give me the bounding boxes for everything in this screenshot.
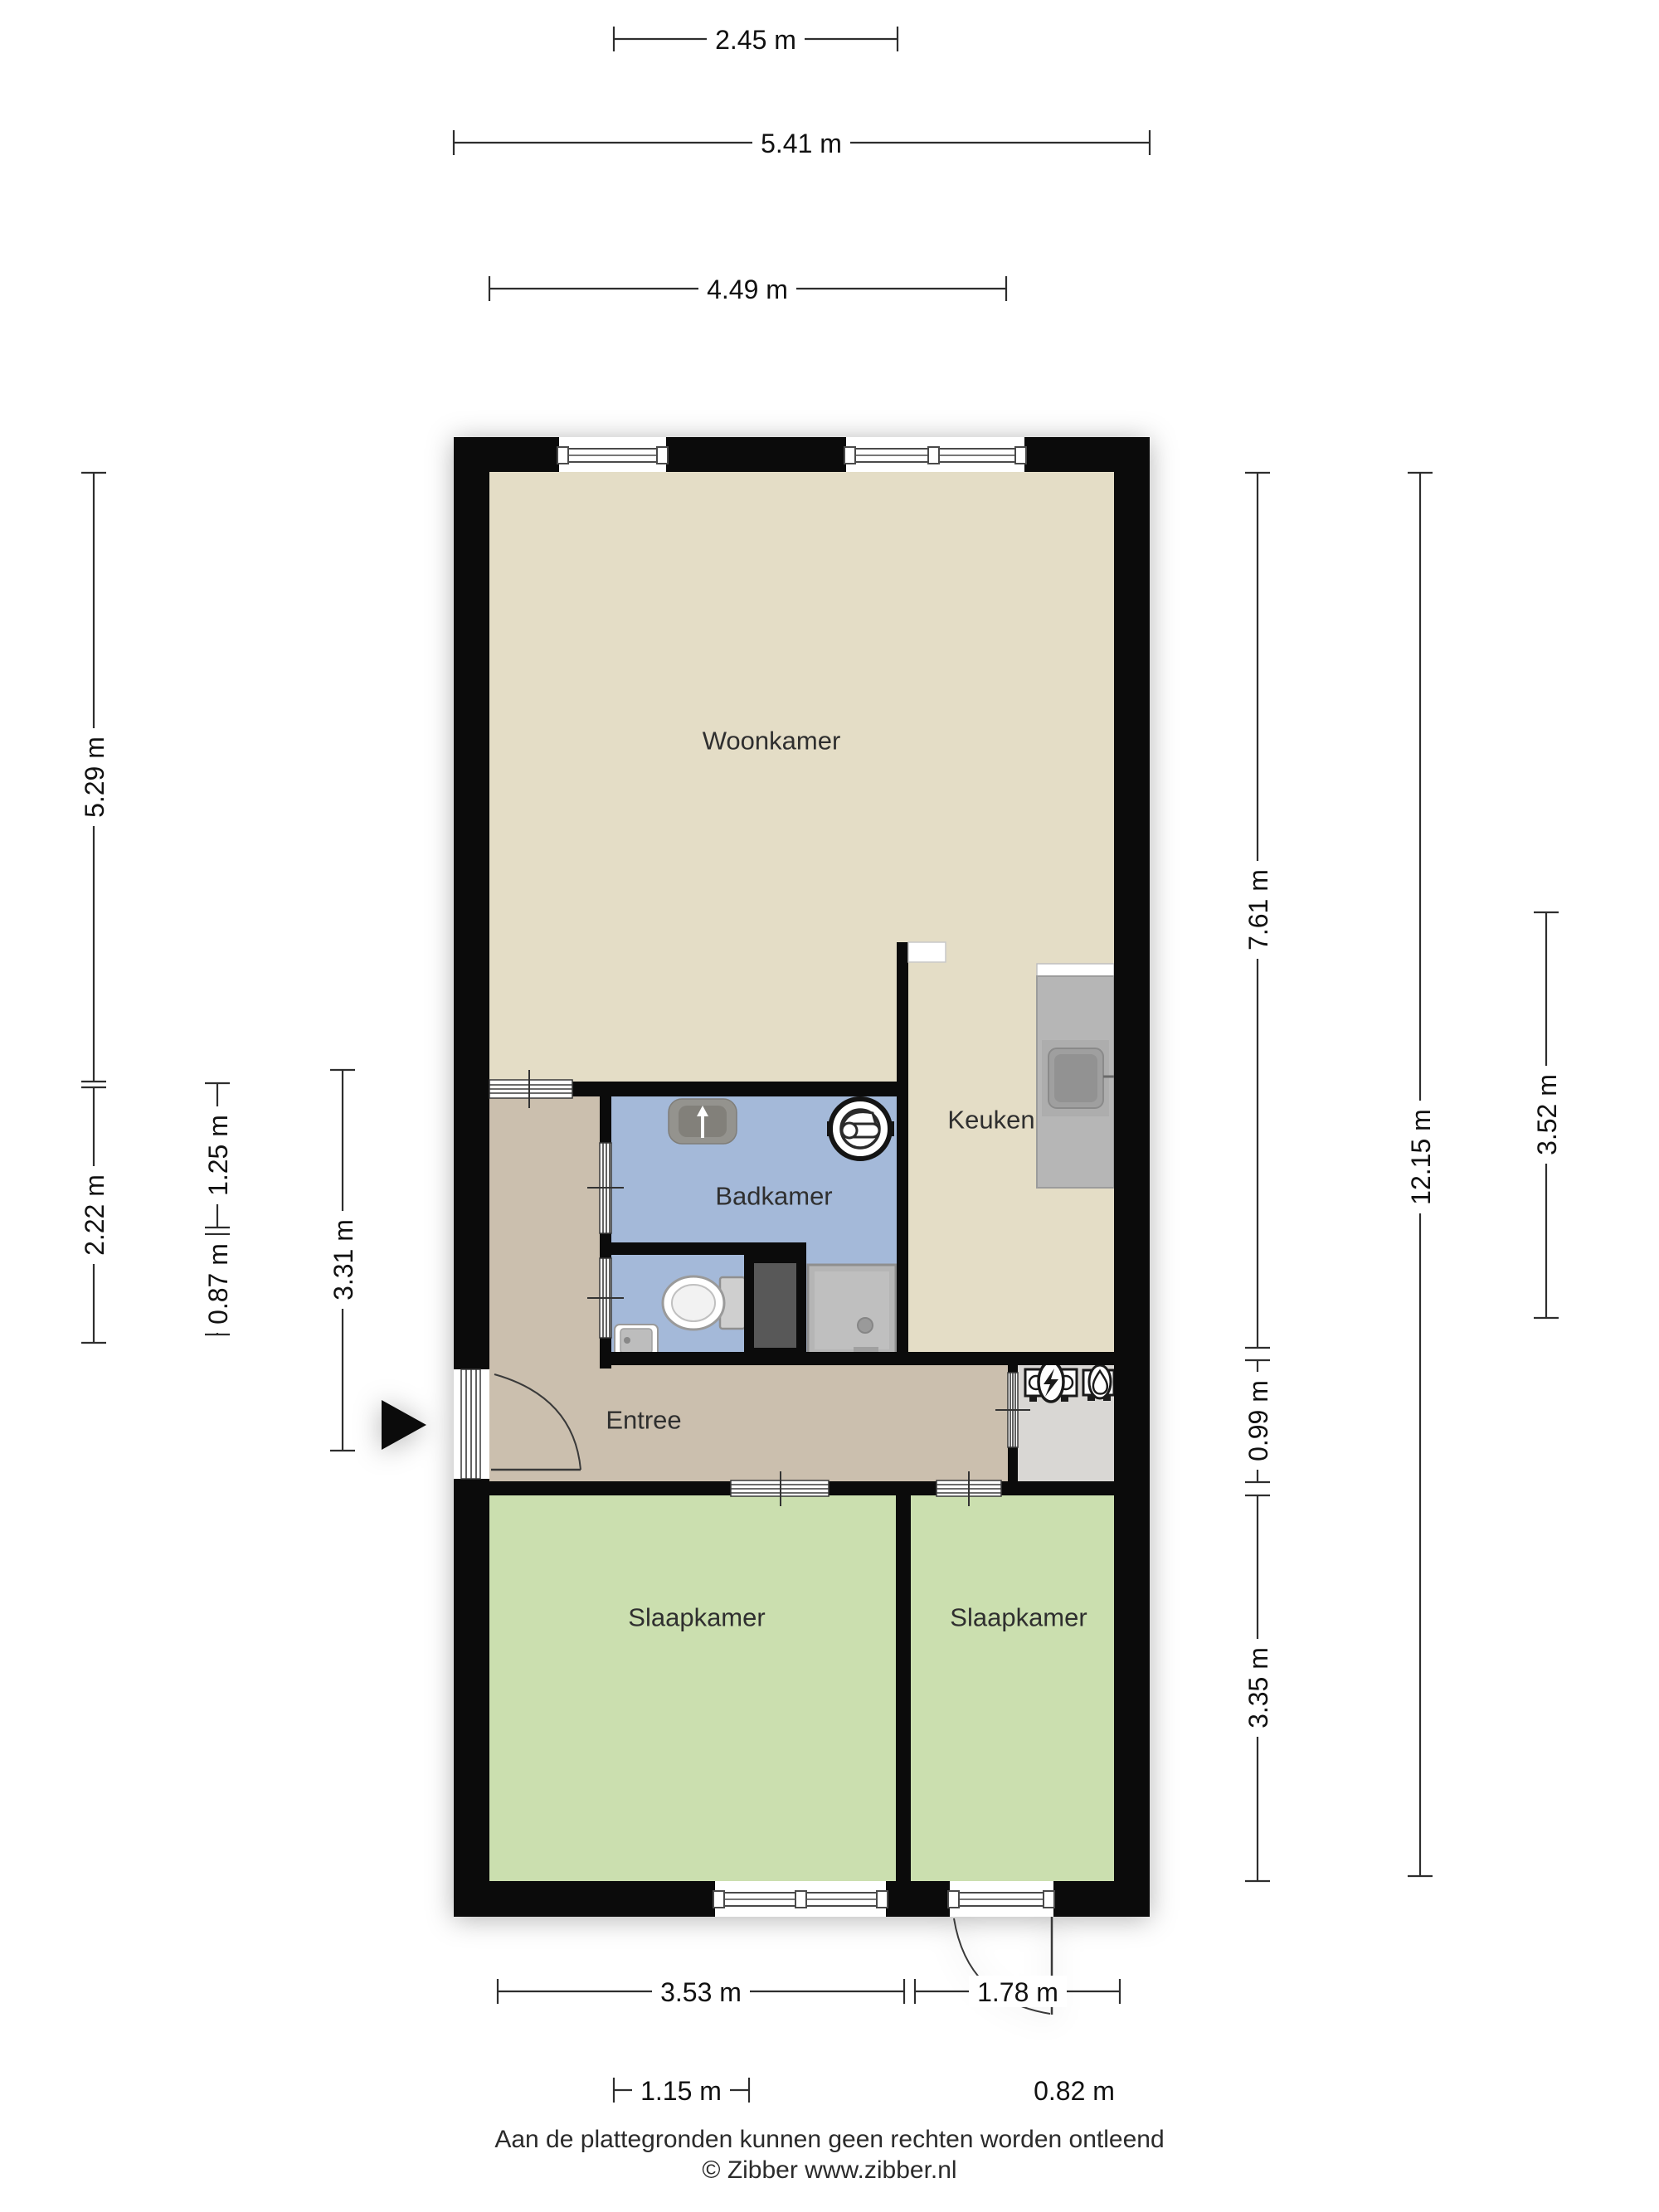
gas-meter-icon <box>1083 1365 1114 1401</box>
svg-text:3.53 m: 3.53 m <box>660 1977 742 2007</box>
floor-plan-page: Woonkamer Keuken Badkamer Entree Slaapka… <box>0 0 1659 2212</box>
svg-text:1.78 m: 1.78 m <box>977 1977 1058 2007</box>
svg-text:0.87 m: 0.87 m <box>203 1243 233 1325</box>
kitchen-counter <box>1037 964 1120 1188</box>
washing-machine-icon <box>827 1099 894 1159</box>
svg-text:5.41 m: 5.41 m <box>761 129 842 158</box>
dimension-left-5-29: 5.29 m <box>78 473 109 1082</box>
room-slaapkamer-rechts <box>911 1495 1114 1881</box>
dimension-bottom-1-78: 1.78 m <box>915 1976 1120 2007</box>
bathroom-sink-icon <box>669 1099 737 1144</box>
dimension-top-4-49: 4.49 m <box>489 273 1006 304</box>
building <box>382 437 1150 2015</box>
dimension-top-2-45: 2.45 m <box>614 23 898 55</box>
window-keuken-top <box>844 437 1026 472</box>
svg-text:1.15 m: 1.15 m <box>640 2076 722 2106</box>
svg-text:7.61 m: 7.61 m <box>1243 869 1273 950</box>
window-woonkamer-left <box>557 437 668 472</box>
toilet-icon <box>663 1276 745 1330</box>
dimension-right-7-61: 7.61 m <box>1242 473 1273 1348</box>
svg-text:0.99 m: 0.99 m <box>1243 1380 1273 1461</box>
dimension-right-12-15: 12.15 m <box>1404 473 1436 1876</box>
dimension-left-3-31: 3.31 m <box>327 1070 358 1451</box>
svg-text:0.82 m: 0.82 m <box>1034 2076 1115 2106</box>
shower-icon <box>808 1265 896 1356</box>
svg-text:2.22 m: 2.22 m <box>80 1174 109 1256</box>
label-woonkamer: Woonkamer <box>703 727 841 756</box>
svg-text:3.31 m: 3.31 m <box>328 1219 358 1300</box>
dimension-left-2-22: 2.22 m <box>78 1087 109 1343</box>
label-keuken: Keuken <box>947 1106 1034 1135</box>
dimension-bottom-1-15: 1.15 m <box>614 2074 749 2106</box>
keuken-opening <box>908 942 946 962</box>
label-slaapkamer-rechts: Slaapkamer <box>950 1603 1087 1632</box>
footer-disclaimer: Aan de plattegronden kunnen geen rechten… <box>494 2126 1164 2153</box>
window-slaapkamer-links <box>713 1881 888 1917</box>
entrance-arrow-icon <box>382 1400 426 1450</box>
dimension-bottom-3-53: 3.53 m <box>498 1976 904 2007</box>
dimension-left-1-25: 1.25 m <box>202 1083 233 1228</box>
svg-text:12.15 m: 12.15 m <box>1406 1109 1436 1205</box>
label-slaapkamer-links: Slaapkamer <box>628 1603 765 1632</box>
room-woonkamer <box>489 472 1114 1082</box>
shaft <box>744 1255 806 1356</box>
svg-text:3.52 m: 3.52 m <box>1532 1074 1562 1155</box>
dimension-bottom-0-82: 0.82 m <box>1034 2076 1115 2106</box>
footer-copyright: © Zibber www.zibber.nl <box>702 2156 956 2184</box>
label-badkamer: Badkamer <box>715 1182 832 1211</box>
room-slaapkamer-links <box>489 1495 896 1881</box>
svg-text:1.25 m: 1.25 m <box>203 1115 233 1196</box>
dimension-left-0-87: 0.87 m <box>202 1234 233 1334</box>
svg-text:4.49 m: 4.49 m <box>707 275 788 304</box>
svg-text:2.45 m: 2.45 m <box>715 25 796 55</box>
dimension-top-5-41: 5.41 m <box>454 127 1150 158</box>
svg-text:3.35 m: 3.35 m <box>1243 1647 1273 1728</box>
dimension-right-3-35: 3.35 m <box>1242 1495 1273 1881</box>
svg-text:5.29 m: 5.29 m <box>80 737 109 818</box>
label-entree: Entree <box>606 1406 681 1435</box>
floor-plan-drawing: Woonkamer Keuken Badkamer Entree Slaapka… <box>0 0 1659 2212</box>
dimension-right-3-52: 3.52 m <box>1530 912 1562 1318</box>
dimension-right-0-99: 0.99 m <box>1242 1360 1273 1482</box>
